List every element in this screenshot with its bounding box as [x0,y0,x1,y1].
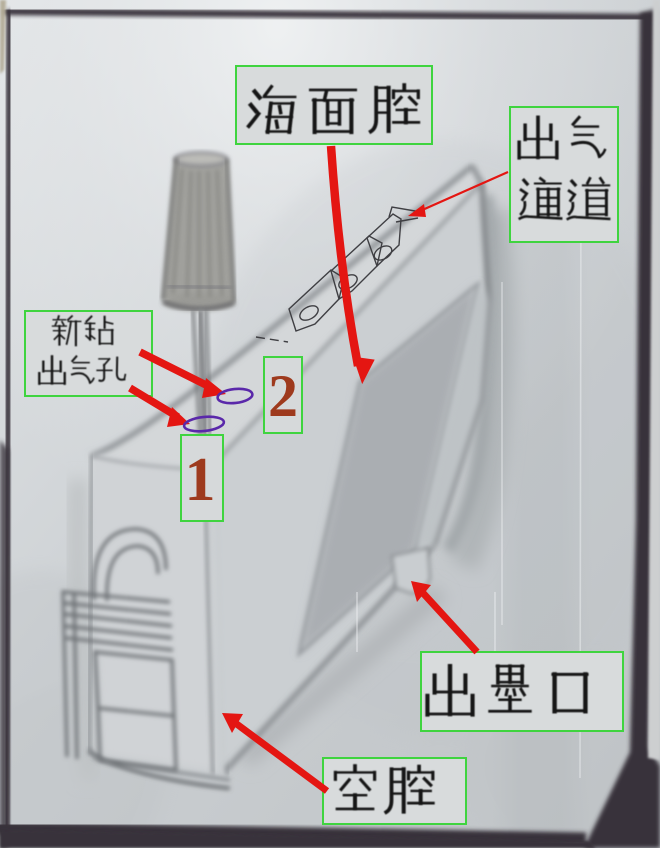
svg-text:1: 1 [185,446,216,514]
svg-text:2: 2 [268,363,298,429]
